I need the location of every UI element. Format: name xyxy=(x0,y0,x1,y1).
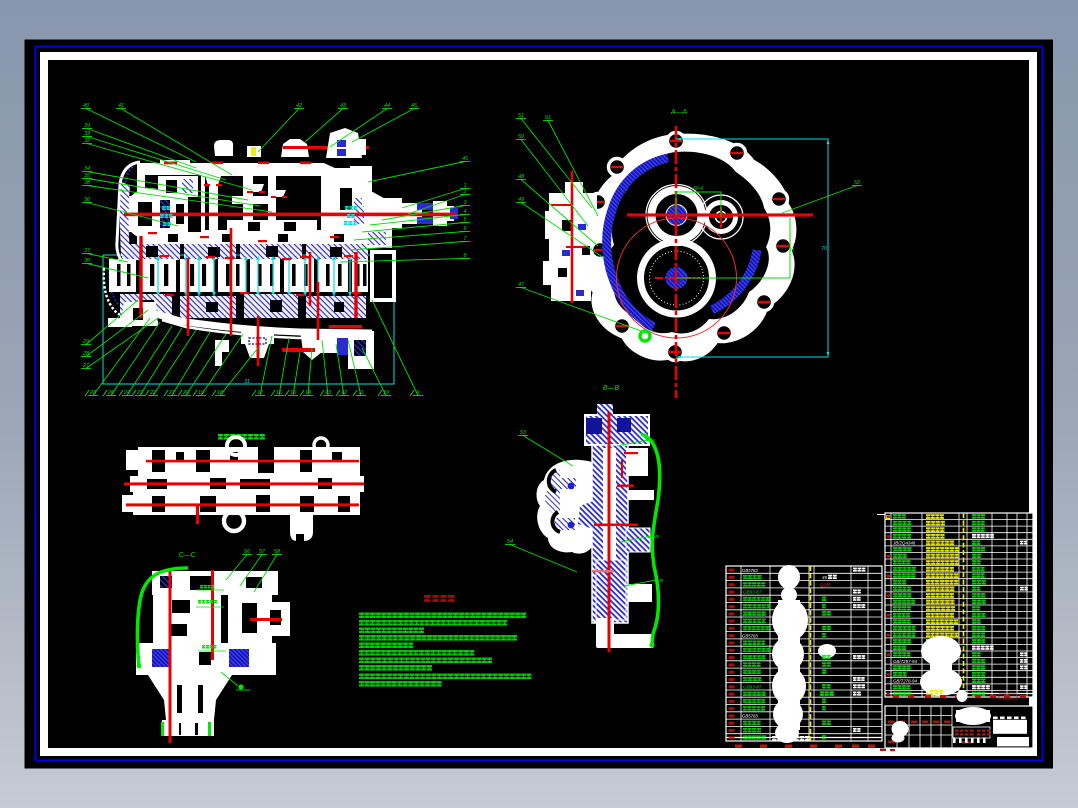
svg-text:17: 17 xyxy=(257,390,264,396)
svg-text:GB/T297-94: GB/T297-94 xyxy=(893,659,917,664)
svg-text:43: 43 xyxy=(340,103,347,109)
svg-text:12: 12 xyxy=(341,390,347,396)
svg-text:13: 13 xyxy=(325,390,332,396)
svg-text:46: 46 xyxy=(462,156,469,162)
svg-text:9: 9 xyxy=(416,390,419,396)
svg-text:61: 61 xyxy=(545,115,551,121)
svg-text:41: 41 xyxy=(118,103,124,109)
svg-text:38: 38 xyxy=(84,180,91,186)
svg-text:49: 49 xyxy=(518,197,524,203)
svg-text:GB93-87: GB93-87 xyxy=(743,590,762,595)
svg-text:24: 24 xyxy=(123,390,130,396)
svg-text:18: 18 xyxy=(217,390,224,396)
svg-text:48: 48 xyxy=(518,174,525,180)
svg-text:22: 22 xyxy=(149,390,156,396)
svg-text:16: 16 xyxy=(276,390,283,396)
svg-text:50.4: 50.4 xyxy=(693,186,703,192)
svg-text:56: 56 xyxy=(244,549,251,555)
svg-text:45: 45 xyxy=(411,103,418,109)
svg-text:35: 35 xyxy=(84,173,91,179)
svg-text:C—C: C—C xyxy=(178,552,196,559)
svg-text:52: 52 xyxy=(854,180,860,186)
svg-text:10: 10 xyxy=(383,390,390,396)
svg-text:JB/ZQ4346: JB/ZQ4346 xyxy=(892,541,916,546)
svg-text:28: 28 xyxy=(89,390,97,396)
svg-text:31: 31 xyxy=(244,379,250,385)
svg-text:21: 21 xyxy=(168,390,175,396)
svg-text:57: 57 xyxy=(259,549,266,555)
svg-text:30: 30 xyxy=(84,258,91,264)
svg-text:Q235: Q235 xyxy=(820,582,831,587)
svg-text:GB5783: GB5783 xyxy=(742,633,758,638)
svg-text:45: 45 xyxy=(822,575,828,580)
svg-text:32: 32 xyxy=(84,138,90,144)
svg-text:28: 28 xyxy=(82,351,90,357)
svg-text:2: 2 xyxy=(462,189,466,195)
svg-text:14: 14 xyxy=(305,390,311,396)
svg-text:11: 11 xyxy=(358,390,364,396)
svg-text:33: 33 xyxy=(84,131,91,137)
svg-text:26: 26 xyxy=(107,390,115,396)
svg-text:50: 50 xyxy=(518,134,525,140)
svg-text:GB/T276-94: GB/T276-94 xyxy=(893,679,917,684)
svg-text:GB5783: GB5783 xyxy=(742,714,758,719)
svg-text:36: 36 xyxy=(84,197,91,203)
svg-text:34: 34 xyxy=(84,166,90,172)
svg-text:37: 37 xyxy=(84,248,91,254)
svg-text:15: 15 xyxy=(290,390,297,396)
svg-text:47: 47 xyxy=(518,282,525,288)
svg-text:23: 23 xyxy=(136,390,144,396)
svg-text:M6: M6 xyxy=(649,438,656,443)
svg-text:20: 20 xyxy=(182,390,190,396)
svg-text:58: 58 xyxy=(274,549,281,555)
svg-text:44: 44 xyxy=(384,103,390,109)
svg-text:29: 29 xyxy=(82,339,89,345)
svg-text:70: 70 xyxy=(821,246,827,252)
svg-text:19: 19 xyxy=(198,390,204,396)
svg-text:76: 76 xyxy=(790,247,796,253)
svg-text:53: 53 xyxy=(520,430,527,436)
svg-text:39: 39 xyxy=(84,123,90,129)
svg-text:54: 54 xyxy=(507,539,513,545)
svg-text:M8: M8 xyxy=(653,534,660,539)
svg-text:4: 4 xyxy=(463,209,466,215)
svg-text:27: 27 xyxy=(82,363,90,369)
svg-text:40: 40 xyxy=(83,103,90,109)
svg-text:M8: M8 xyxy=(657,578,664,583)
svg-text:51: 51 xyxy=(518,113,524,119)
svg-text:B—B: B—B xyxy=(603,385,620,392)
svg-text:GB5783: GB5783 xyxy=(742,568,758,573)
svg-text:42: 42 xyxy=(296,103,302,109)
svg-text:GB93-87: GB93-87 xyxy=(743,685,762,690)
svg-text:A—A: A—A xyxy=(670,109,688,116)
